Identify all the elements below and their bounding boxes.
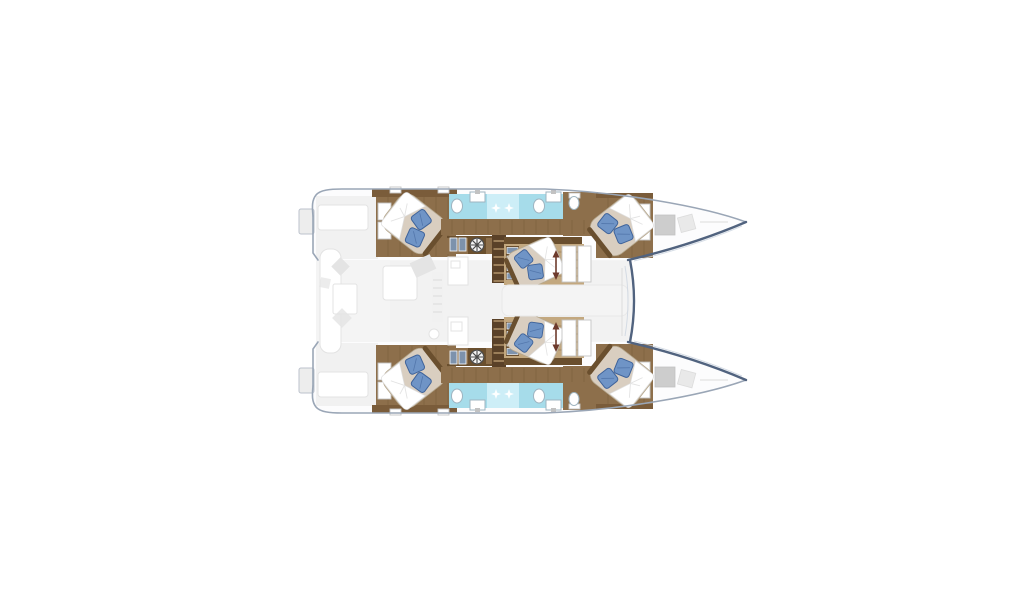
- deck-hatch-icon: [677, 214, 695, 232]
- toilet-icon: [569, 197, 579, 210]
- galley-sink-icon: [451, 261, 460, 268]
- sink-icon: [452, 199, 463, 213]
- stove-icon: [451, 322, 462, 331]
- locker-door: [450, 238, 457, 251]
- tap-icon: [475, 190, 480, 194]
- tap-icon: [551, 190, 556, 194]
- aft-deck-step: [318, 205, 368, 230]
- locker-door: [459, 238, 466, 251]
- saloon-sofa: [383, 266, 417, 300]
- deck-hatch-icon: [390, 187, 401, 193]
- cockpit-table: [333, 284, 357, 314]
- deck-hatch-icon: [655, 215, 675, 235]
- wardrobe-door: [562, 246, 576, 282]
- sink-icon: [534, 199, 545, 213]
- shower-floor: [487, 194, 519, 219]
- wardrobe-door: [578, 246, 591, 282]
- stair-well: [492, 235, 506, 283]
- deck-hatch-icon: [438, 187, 449, 193]
- round-stool: [429, 329, 439, 339]
- cockpit-cushion: [319, 277, 331, 289]
- washer-drum-icon: [468, 236, 486, 254]
- swim-platform: [299, 209, 314, 234]
- corridor-floor: [441, 219, 598, 235]
- catamaran-deck-plan: [0, 0, 1024, 600]
- forward-seating-ghost: [502, 285, 628, 316]
- companionway-stairs: [492, 235, 506, 283]
